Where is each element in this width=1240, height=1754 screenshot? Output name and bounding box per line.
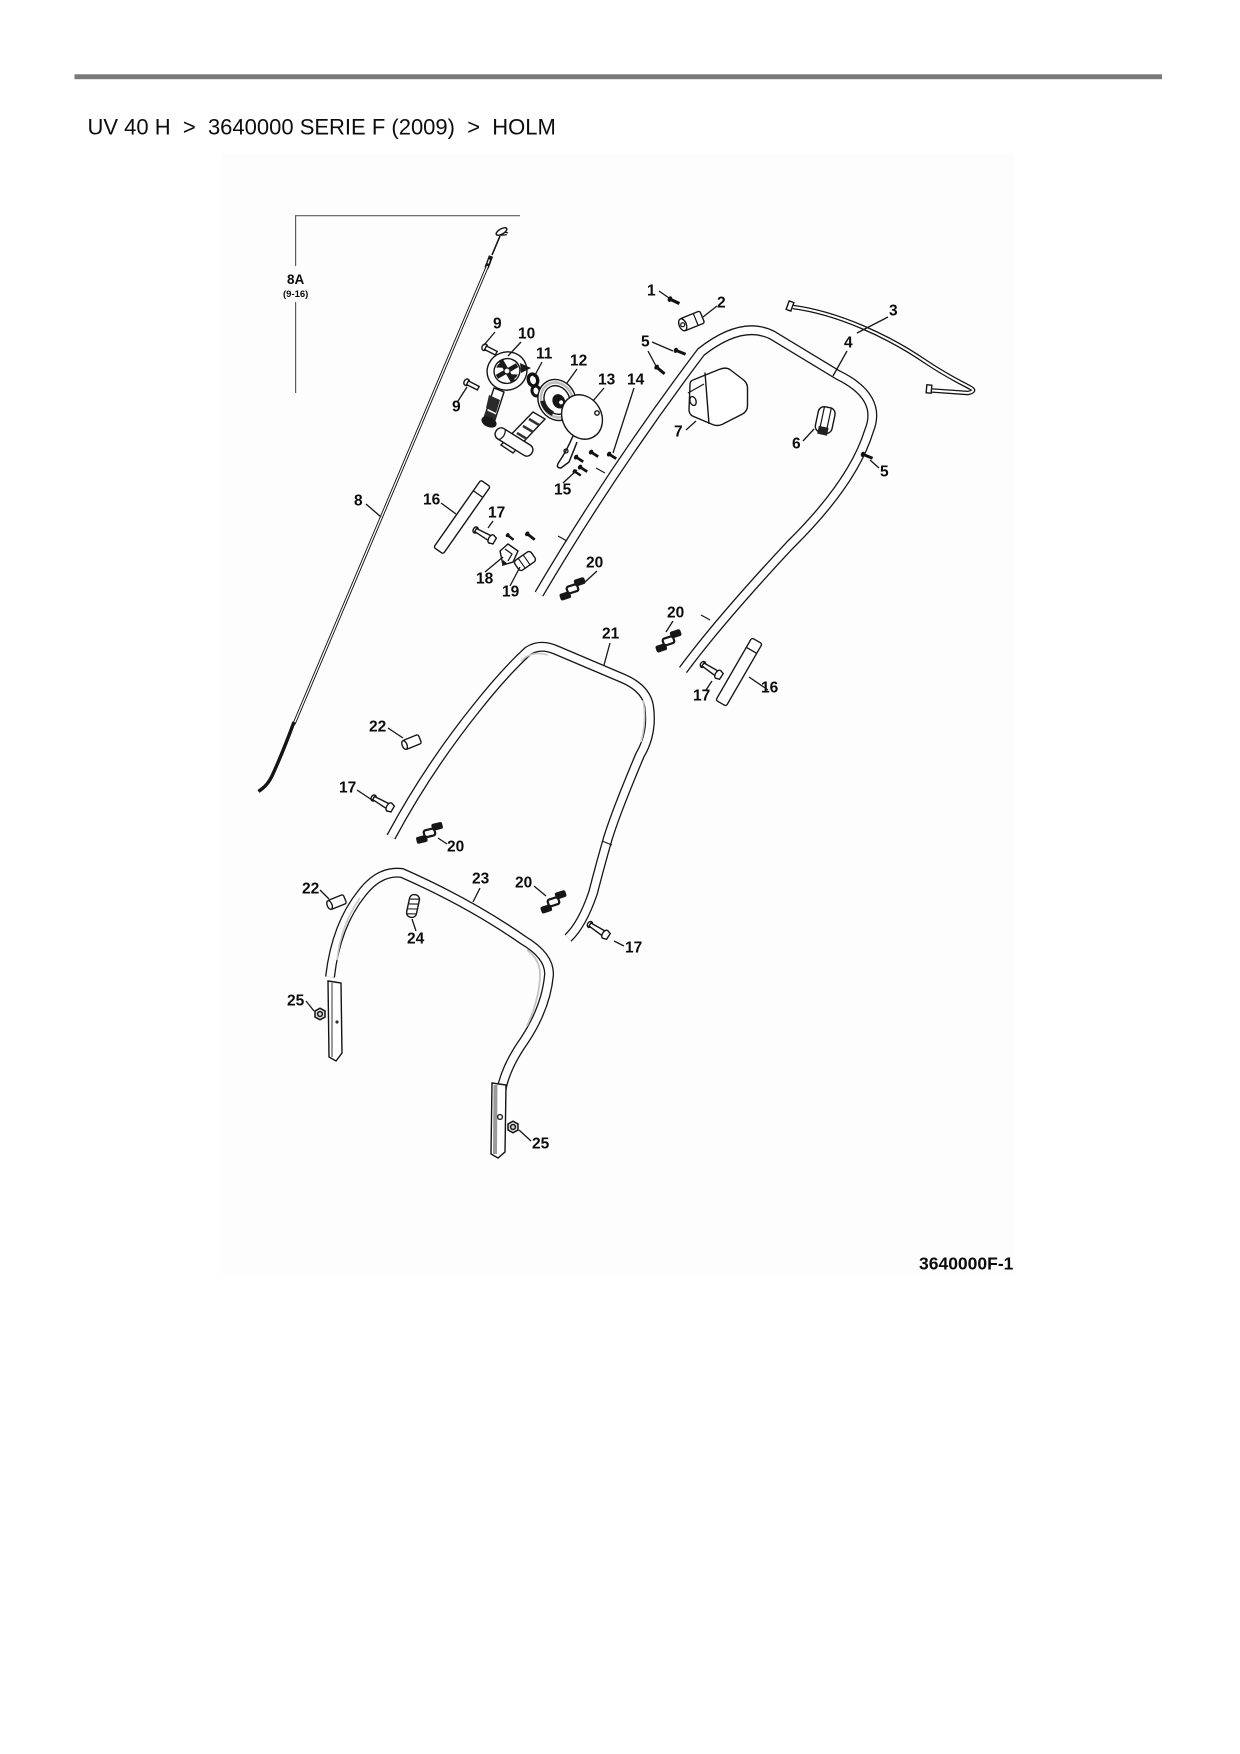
svg-text:19: 19 bbox=[502, 584, 520, 601]
svg-text:15: 15 bbox=[554, 482, 572, 499]
svg-text:1: 1 bbox=[647, 283, 656, 300]
svg-text:2: 2 bbox=[717, 295, 726, 312]
svg-text:21: 21 bbox=[602, 626, 620, 643]
svg-text:3: 3 bbox=[889, 303, 898, 320]
svg-text:5: 5 bbox=[880, 464, 889, 481]
svg-text:22: 22 bbox=[302, 881, 319, 898]
svg-text:5: 5 bbox=[641, 334, 650, 351]
svg-text:17: 17 bbox=[693, 688, 710, 705]
svg-text:12: 12 bbox=[570, 353, 587, 370]
svg-text:11: 11 bbox=[536, 346, 553, 363]
svg-text:13: 13 bbox=[598, 372, 616, 389]
svg-text:9: 9 bbox=[452, 399, 461, 416]
svg-text:20: 20 bbox=[447, 839, 464, 856]
svg-text:23: 23 bbox=[472, 871, 490, 888]
svg-text:17: 17 bbox=[625, 940, 642, 957]
svg-text:17: 17 bbox=[488, 505, 505, 522]
svg-text:18: 18 bbox=[476, 571, 494, 588]
svg-text:9: 9 bbox=[493, 316, 502, 333]
svg-text:24: 24 bbox=[407, 931, 425, 948]
svg-text:3640000F-1: 3640000F-1 bbox=[919, 1254, 1014, 1274]
svg-text:25: 25 bbox=[287, 993, 305, 1010]
svg-text:8: 8 bbox=[354, 493, 363, 510]
svg-text:20: 20 bbox=[515, 875, 532, 892]
svg-text:16: 16 bbox=[761, 680, 779, 697]
svg-text:10: 10 bbox=[518, 326, 535, 343]
svg-text:7: 7 bbox=[674, 424, 683, 441]
svg-text:8A: 8A bbox=[287, 272, 305, 287]
svg-text:6: 6 bbox=[792, 436, 801, 453]
svg-text:14: 14 bbox=[627, 372, 645, 389]
svg-text:4: 4 bbox=[844, 335, 853, 352]
svg-text:16: 16 bbox=[423, 492, 441, 509]
svg-text:20: 20 bbox=[667, 605, 684, 622]
svg-text:UV 40 H > 3640000 SERIE F (2: UV 40 H > 3640000 SERIE F (2009) > HOLM bbox=[88, 115, 556, 140]
svg-text:20: 20 bbox=[586, 555, 603, 572]
svg-text:(9-16): (9-16) bbox=[283, 289, 308, 300]
svg-text:22: 22 bbox=[369, 719, 386, 736]
svg-text:25: 25 bbox=[532, 1136, 550, 1153]
svg-text:17: 17 bbox=[339, 780, 356, 797]
